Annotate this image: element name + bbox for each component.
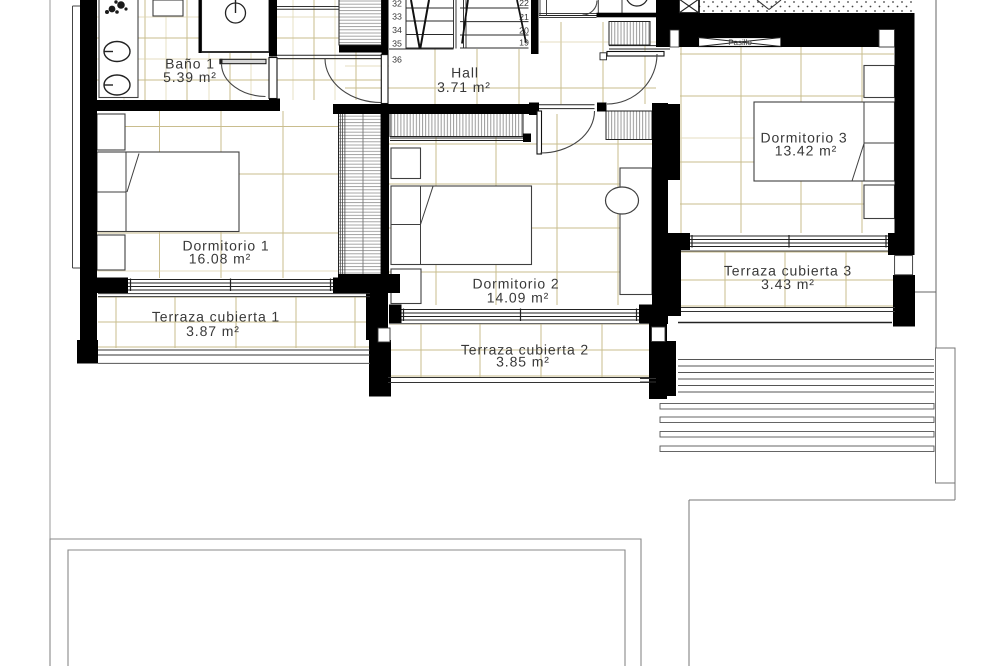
svg-text:36: 36 xyxy=(392,55,402,65)
svg-text:3.43 m²: 3.43 m² xyxy=(761,276,815,292)
svg-text:3.87 m²: 3.87 m² xyxy=(186,323,240,339)
svg-text:33: 33 xyxy=(392,12,402,22)
svg-text:5.39 m²: 5.39 m² xyxy=(163,69,217,85)
svg-text:Pasillo: Pasillo xyxy=(728,38,752,47)
svg-text:3.71 m²: 3.71 m² xyxy=(437,79,491,95)
svg-text:13.42 m²: 13.42 m² xyxy=(775,143,837,159)
svg-text:19: 19 xyxy=(519,38,529,48)
svg-text:22: 22 xyxy=(519,0,529,8)
svg-text:3.85 m²: 3.85 m² xyxy=(496,354,550,370)
svg-text:21: 21 xyxy=(519,12,529,22)
svg-text:14.09 m²: 14.09 m² xyxy=(487,290,549,306)
svg-text:34: 34 xyxy=(392,25,402,35)
svg-text:35: 35 xyxy=(392,39,402,49)
svg-text:16.08 m²: 16.08 m² xyxy=(189,251,251,267)
svg-text:32: 32 xyxy=(392,0,402,9)
svg-text:20: 20 xyxy=(519,25,529,35)
